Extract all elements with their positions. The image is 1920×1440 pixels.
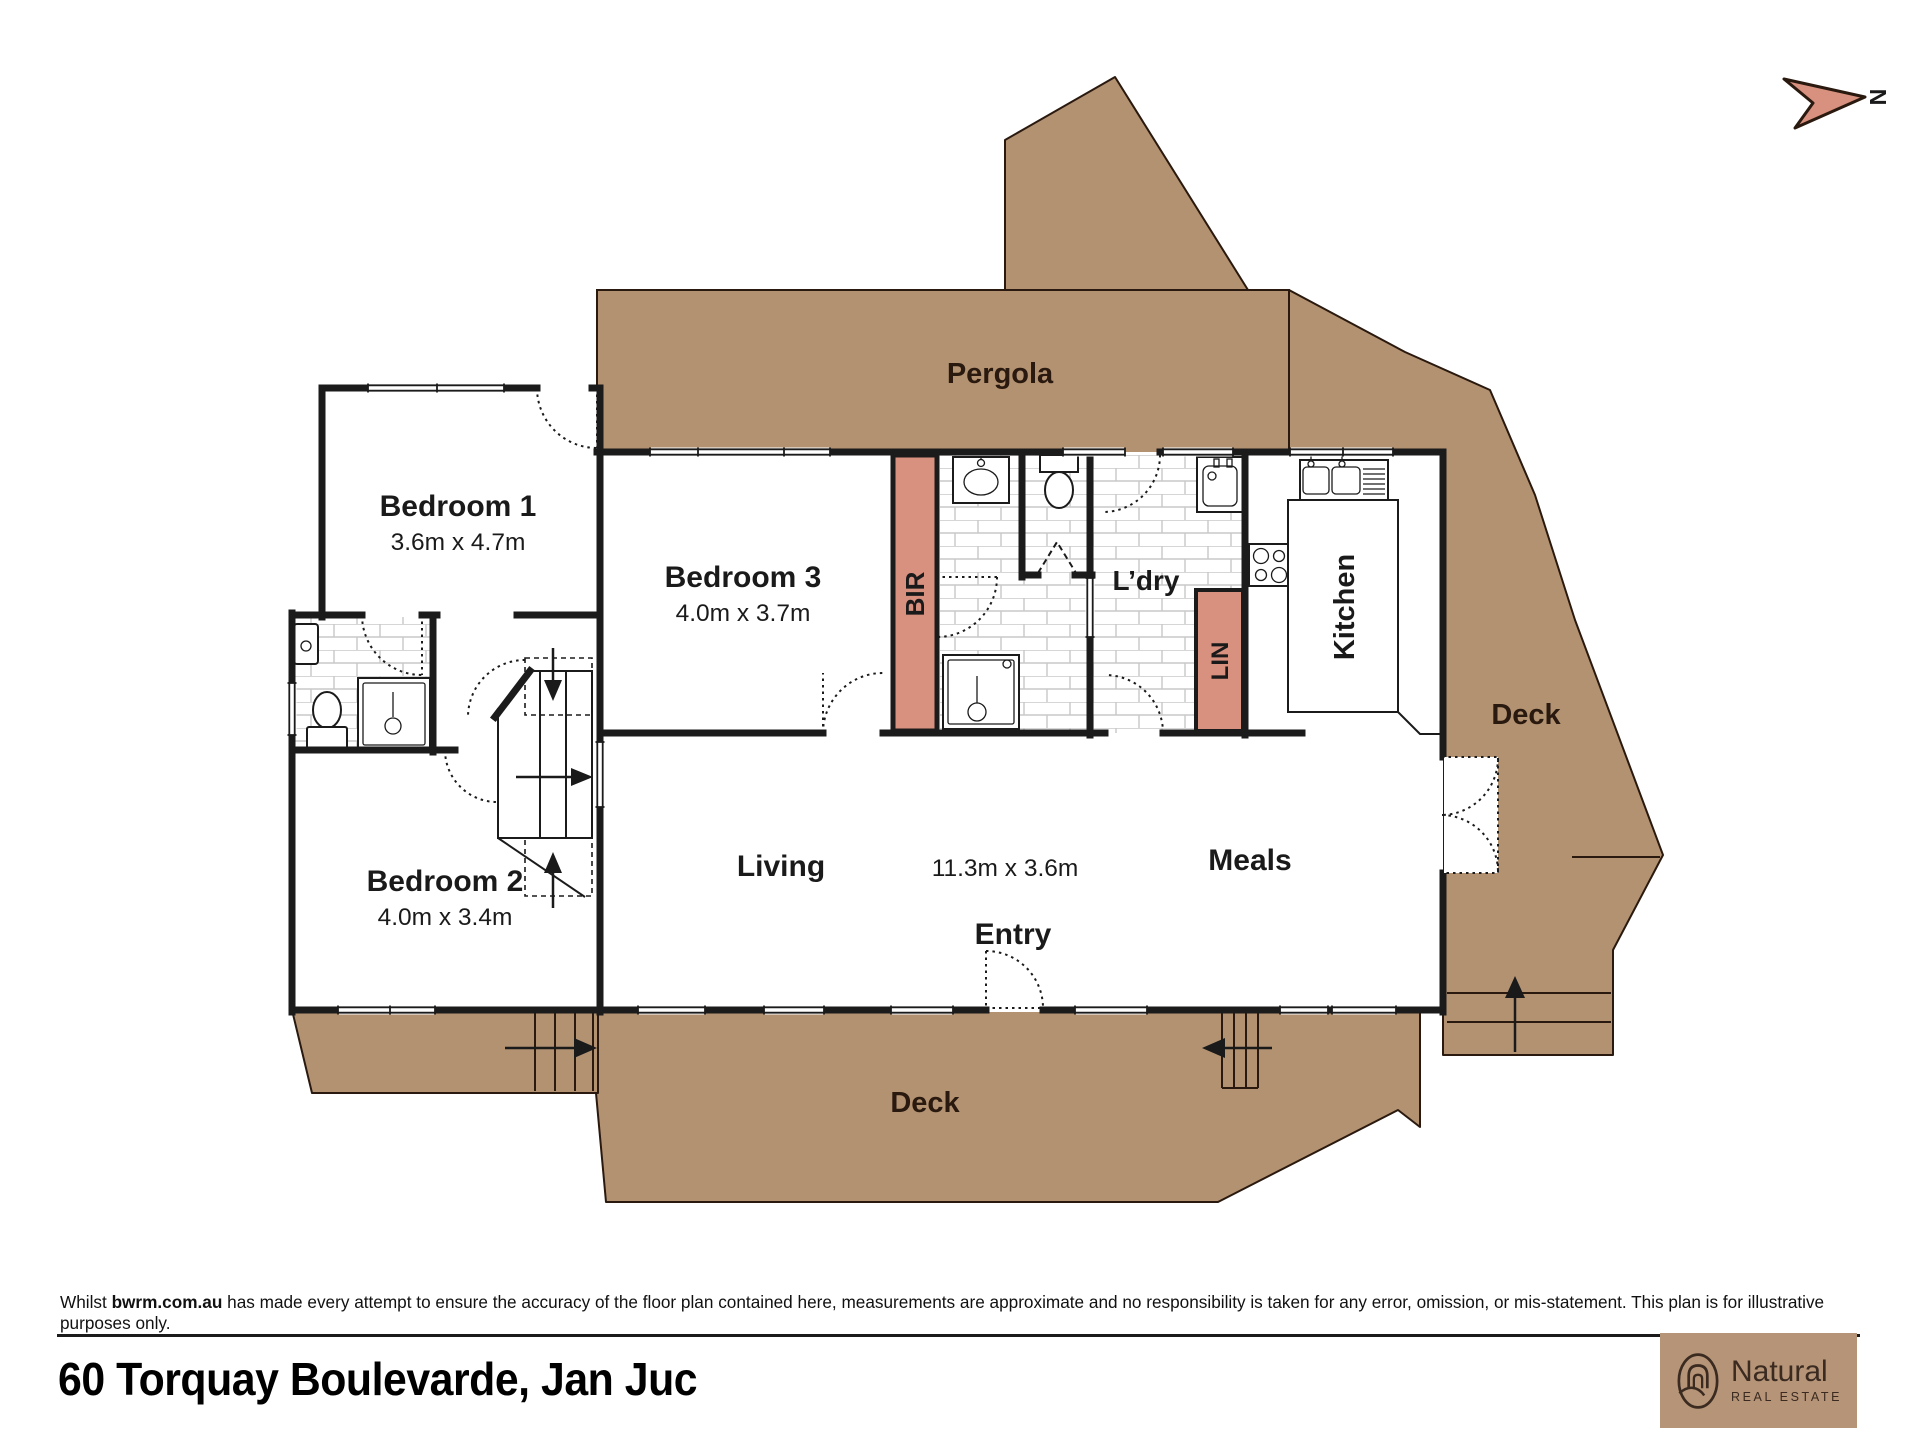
north-indicator: N <box>1784 79 1891 128</box>
sink-icon <box>294 624 318 664</box>
disclaimer-text: Whilst bwrm.com.au has made every attemp… <box>60 1292 1860 1334</box>
living-dim: 11.3m x 3.6m <box>932 855 1079 882</box>
cooktop-icon <box>1249 544 1288 586</box>
agency-logo-icon <box>1675 1351 1721 1411</box>
pergola-label: Pergola <box>947 358 1054 390</box>
shower-icon <box>358 678 430 750</box>
bedroom2-label: Bedroom 2 <box>367 865 524 898</box>
agency-brand: Natural <box>1731 1357 1842 1387</box>
deck-bottom-area <box>596 1010 1420 1202</box>
vanity-icon <box>953 457 1009 503</box>
living-label: Living <box>737 850 825 883</box>
deck-bottomleft-strip <box>292 1010 598 1093</box>
disclaimer-site: bwrm.com.au <box>112 1292 223 1312</box>
agency-logo: Natural REAL ESTATE <box>1660 1333 1857 1428</box>
bedroom3-label: Bedroom 3 <box>665 561 822 594</box>
floorplan-page: { "north": { "letter": "N" }, "plan": { … <box>0 0 1920 1440</box>
north-arrow-icon <box>1784 79 1865 128</box>
bedroom1-dim: 3.6m x 4.7m <box>391 529 526 556</box>
toilet-icon <box>1040 455 1078 472</box>
lin-label: LIN <box>1207 642 1234 681</box>
toilet-icon <box>313 692 341 728</box>
page-title: 60 Torquay Boulevarde, Jan Juc <box>58 1352 697 1406</box>
meals-label: Meals <box>1208 844 1291 877</box>
deck-right-label: Deck <box>1491 699 1561 731</box>
deck-top-spike <box>1005 77 1248 290</box>
laundry-fixtures <box>1197 457 1243 512</box>
entry-label: Entry <box>975 918 1052 951</box>
laundry-label: L’dry <box>1113 565 1180 596</box>
deck-bottom-label: Deck <box>890 1087 960 1119</box>
shower-icon <box>943 655 1019 729</box>
north-letter: N <box>1865 89 1891 106</box>
footer-divider <box>57 1334 1860 1337</box>
bir-label: BIR <box>900 571 930 616</box>
bedroom1-label: Bedroom 1 <box>380 490 537 523</box>
kitchen-label: Kitchen <box>1329 554 1361 660</box>
bedroom2-dim: 4.0m x 3.4m <box>378 904 513 931</box>
floorplan-drawing: Pergola Deck Deck Bedroom 1 3.6m x 4.7m … <box>0 0 1920 1250</box>
bedroom3-dim: 4.0m x 3.7m <box>676 600 811 627</box>
agency-tagline: REAL ESTATE <box>1731 1391 1842 1404</box>
pergola-area <box>597 290 1289 454</box>
